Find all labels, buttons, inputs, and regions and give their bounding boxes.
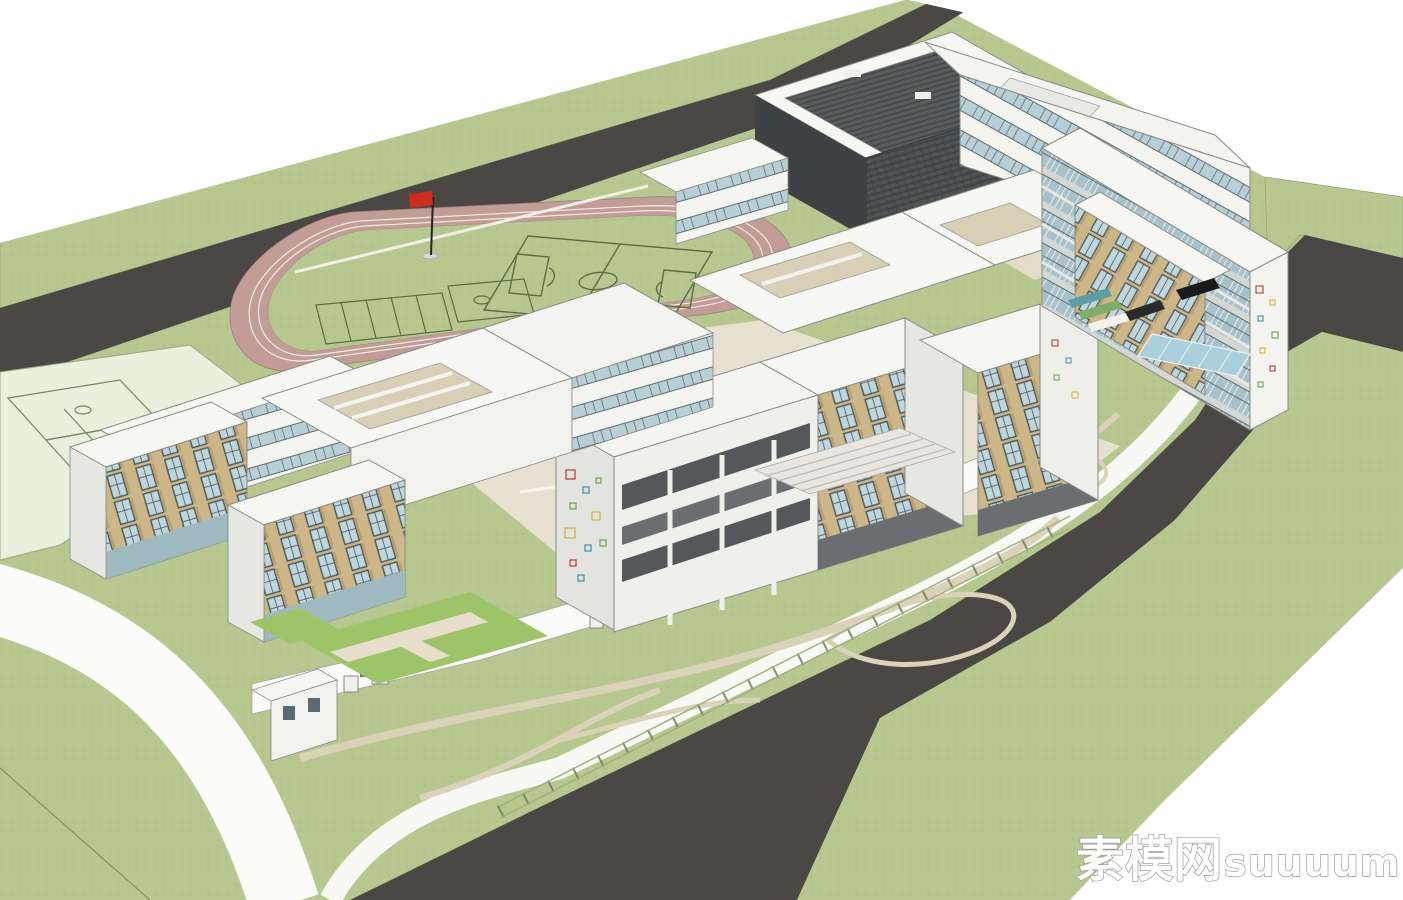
watermark-en: suuuum.com xyxy=(1224,841,1403,885)
watermark: 素模网 suuuum.com xyxy=(1076,832,1403,888)
low-wing-window xyxy=(283,706,295,720)
architectural-rendering: 素模网 suuuum.com xyxy=(0,0,1403,900)
gym-skylight xyxy=(845,70,861,77)
tan-block-1-west xyxy=(70,447,106,579)
confetti-wall-east xyxy=(1250,252,1288,430)
low-wing-window xyxy=(308,698,320,712)
campus-scene: 素模网 suuuum.com xyxy=(0,0,1403,900)
confetti-wall-west xyxy=(556,424,614,630)
gym-skylight xyxy=(915,92,931,99)
watermark-cn: 素模网 xyxy=(1076,832,1223,888)
red-flag xyxy=(409,191,433,208)
